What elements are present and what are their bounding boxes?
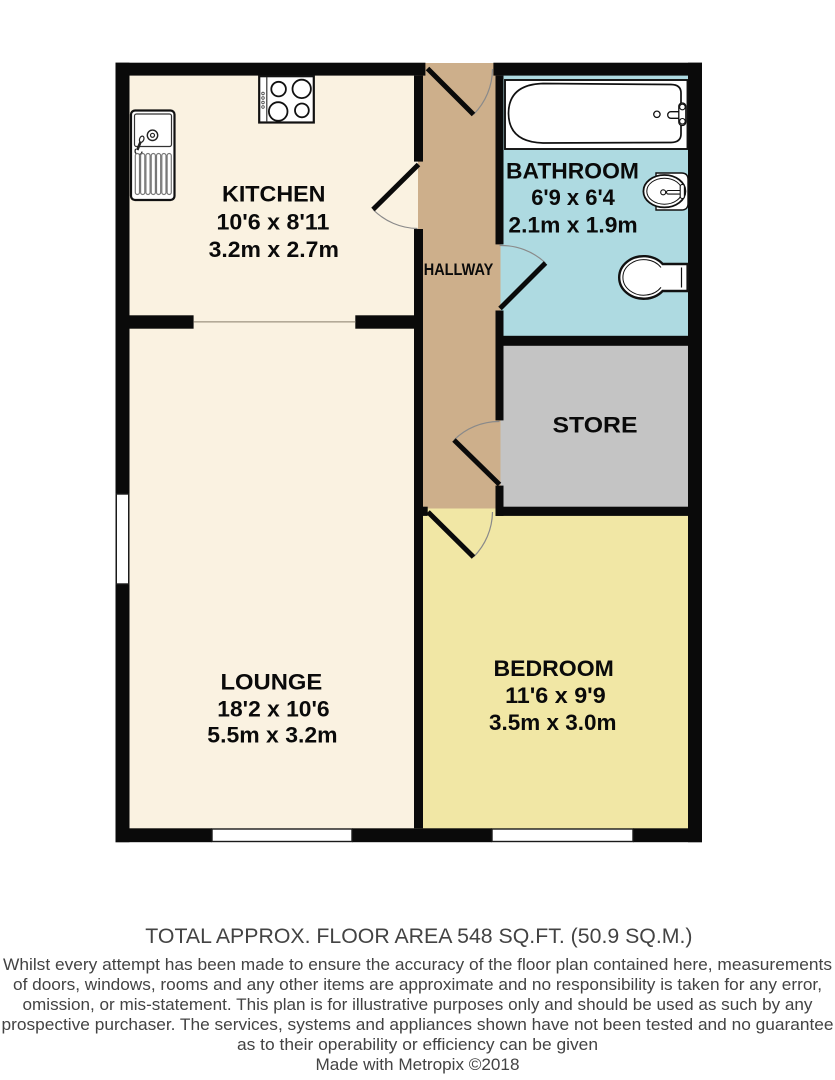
svg-text:of doors, windows, rooms and a: of doors, windows, rooms and any other i… [13, 976, 822, 994]
svg-text:10'6 x 8'11: 10'6 x 8'11 [217, 209, 330, 234]
svg-text:Made with Metropix ©2018: Made with Metropix ©2018 [316, 1056, 520, 1074]
svg-text:6'9 x 6'4: 6'9 x 6'4 [531, 185, 615, 210]
svg-text:3.5m x 3.0m: 3.5m x 3.0m [489, 710, 617, 735]
svg-text:3.2m x 2.7m: 3.2m x 2.7m [209, 237, 339, 262]
svg-text:2.1m x 1.9m: 2.1m x 1.9m [508, 213, 637, 238]
svg-text:11'6 x 9'9: 11'6 x 9'9 [505, 683, 606, 708]
svg-text:BATHROOM: BATHROOM [506, 159, 639, 184]
svg-text:Whilst every attempt has been: Whilst every attempt has been made to en… [3, 956, 832, 974]
svg-text:STORE: STORE [553, 412, 638, 437]
svg-text:TOTAL APPROX. FLOOR AREA 548 S: TOTAL APPROX. FLOOR AREA 548 SQ.FT. (50.… [145, 925, 692, 948]
svg-text:prospective purchaser. The ser: prospective purchaser. The services, sys… [2, 1016, 834, 1034]
svg-text:18'2 x 10'6: 18'2 x 10'6 [217, 696, 329, 721]
svg-text:KITCHEN: KITCHEN [222, 182, 326, 207]
svg-text:5.5m x 3.2m: 5.5m x 3.2m [207, 723, 337, 748]
svg-text:HALLWAY: HALLWAY [424, 261, 494, 279]
svg-text:omission, or mis-statement. Th: omission, or mis-statement. This plan is… [23, 996, 814, 1014]
svg-text:as to their operability or eff: as to their operability or efficiency ca… [237, 1036, 598, 1054]
svg-text:BEDROOM: BEDROOM [494, 656, 614, 681]
svg-text:LOUNGE: LOUNGE [221, 670, 323, 695]
